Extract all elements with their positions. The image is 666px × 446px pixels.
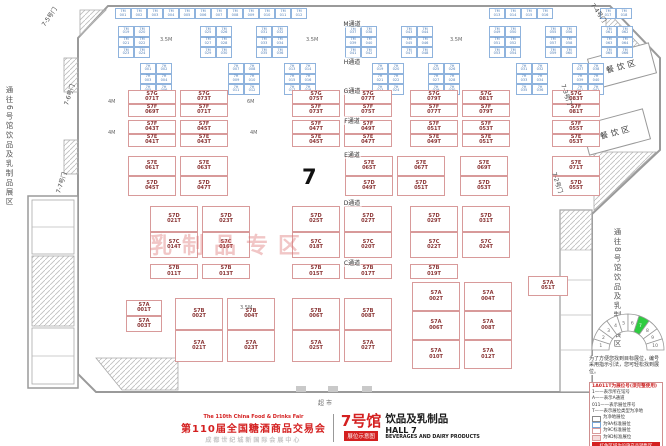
legend-swatches: 为净地展位为9A标准展位为9C标准展位为9D标准展位 — [592, 415, 660, 441]
booth-cell: 7M019 — [118, 26, 134, 37]
booth-cell: 7M032 — [272, 26, 288, 37]
booth-cell: 7M048 — [417, 47, 433, 58]
booth-cell: 7M057 — [545, 37, 561, 48]
hall-topic-en: BEVERAGES AND DAIRY PRODUCTS — [385, 435, 480, 440]
booth-cell: 7M045 — [401, 37, 417, 48]
booth-cell: S7E047T — [344, 134, 392, 148]
hall-name-en: HALL 7 — [385, 426, 480, 435]
booth-cell: 7M060 — [561, 47, 577, 58]
booth-cell: S7B006T — [292, 298, 340, 330]
booth-cell: 7M002 — [131, 8, 147, 19]
dimension-note: 4M — [108, 99, 116, 105]
booth-cell: 7H025 — [428, 63, 444, 74]
booth-cell: S7D045T — [128, 176, 176, 196]
booth-cell: 7M022 — [134, 37, 150, 48]
booth-cell: S7C018T — [292, 232, 340, 258]
booth-cell: S7A027T — [344, 330, 392, 362]
booth-cell: 7M047 — [401, 47, 417, 58]
booth-cell: 7M029 — [200, 47, 216, 58]
booth-cell: S7D053T — [460, 176, 508, 196]
booth-cell: 7M011 — [275, 8, 291, 19]
booth-cell: S7F055T — [552, 120, 600, 134]
locator-hall-number: 5 — [622, 320, 625, 326]
corridor-label: G通道 — [343, 86, 362, 95]
corridor-label: E通道 — [343, 150, 361, 159]
booth-cell: 7H013 — [284, 63, 300, 74]
booth-cell: 7H028 — [444, 74, 460, 85]
booth-cell: 7H031 — [516, 63, 532, 74]
booth-cell: S7D027T — [344, 206, 392, 232]
booth-cell: 7M005 — [179, 8, 195, 19]
booth-cell: S7D051T — [397, 176, 445, 196]
booth-cell: S7F043T — [128, 120, 176, 134]
venue-label: 成都世纪城新国际会展中心 — [205, 435, 301, 444]
booth-cell: 7H008 — [244, 63, 260, 74]
corridor-label: F通道 — [343, 116, 360, 125]
booth-cell: 7M040 — [361, 37, 377, 48]
legend-footer: 红色区域为设施产品销售区 — [592, 442, 660, 446]
booth-cell: 7M031 — [256, 26, 272, 37]
locator-hall-number: 7 — [639, 323, 642, 329]
booth-cell: S7B008T — [344, 298, 392, 330]
booth-cell: 7H009 — [228, 74, 244, 85]
booth-cell: S7C024T — [462, 232, 510, 258]
booth-cell: 7M016 — [537, 8, 553, 19]
booth-cell: 7M012 — [291, 8, 307, 19]
booth-cell: 7M043 — [401, 26, 417, 37]
booth-cell: S7G071T — [128, 90, 176, 104]
booth-cell: S7F051T — [410, 120, 458, 134]
booth-type-swatch — [592, 416, 601, 422]
booth-cell: 7M061 — [601, 26, 617, 37]
booth-cell: 7H027 — [428, 74, 444, 85]
booth-cell: 7M030 — [216, 47, 232, 58]
booth-cell: S7A051T — [528, 276, 568, 296]
booth-cell: S7A008T — [464, 311, 512, 340]
dimension-note: 3.5M — [450, 37, 462, 43]
booth-cell: 7H026 — [444, 63, 460, 74]
booth-cell: 7M034 — [272, 37, 288, 48]
hall-number-label: 7 — [302, 165, 317, 189]
booth-cell: 7M044 — [417, 26, 433, 37]
booth-cell: S7F075T — [344, 104, 392, 118]
booth-cell: 7M058 — [561, 37, 577, 48]
booth-cell: S7D021T — [150, 206, 198, 232]
booth-cell: S7F047T — [292, 120, 340, 134]
locator-hall-number: 1 — [599, 343, 602, 349]
booth-cell: 7M025 — [200, 26, 216, 37]
booth-cell: 7H016 — [300, 74, 316, 85]
booth-cell: S7B004T — [227, 298, 275, 330]
locator-hall-number: 2 — [602, 335, 605, 341]
booth-cell: 7H034 — [532, 74, 548, 85]
supermarket-label: 超市 — [318, 398, 334, 407]
booth-cell: S7A023T — [227, 330, 275, 362]
legend-swatch-row: 为9D标准展位 — [592, 435, 660, 441]
booth-cell: S7E043T — [180, 134, 228, 148]
booth-cell: S7G083T — [552, 90, 600, 104]
booth-type-swatch — [592, 422, 601, 428]
corridor-label: C通道 — [343, 258, 361, 267]
booth-cell: 7H039 — [572, 74, 588, 85]
booth-cell: 7H038 — [588, 63, 604, 74]
locator-hall-number: 9 — [651, 335, 654, 341]
booth-cell: 7M054 — [505, 47, 521, 58]
booth-cell: S7A002T — [412, 282, 460, 311]
booth-cell: S7D031T — [462, 206, 510, 232]
booth-cell: 7M062 — [617, 26, 633, 37]
booth-cell: 7H002 — [156, 63, 172, 74]
hall-title-group: 7号馆 展位示意图 饮品及乳制品 HALL 7 BEVERAGES AND DA… — [341, 414, 480, 441]
booth-cell: 7M042 — [361, 47, 377, 58]
booth-cell: 7H014 — [300, 63, 316, 74]
locator-hall-number: 3 — [607, 328, 610, 334]
booth-cell: S7E063T — [180, 156, 228, 176]
legend-note: 为了方便您找到目标展位，编号采用指示引法，您可轻松找到展位。 — [589, 356, 663, 375]
booth-cell: S7F069T — [128, 104, 176, 118]
booth-cell: S7B015T — [292, 264, 340, 279]
booth-cell: 7M013 — [489, 8, 505, 19]
booth-cell: 7M056 — [561, 26, 577, 37]
booth-cell: 7M051 — [489, 37, 505, 48]
booth-cell: S7E069T — [460, 156, 508, 176]
booth-cell: S7A001T — [126, 300, 162, 316]
booth-cell: 7M027 — [200, 37, 216, 48]
legend-swatch-label: 为9D标准展位 — [603, 435, 631, 441]
booth-cell: 7M020 — [134, 26, 150, 37]
hall-name-cn: 7号馆 — [341, 414, 381, 429]
booth-cell: S7E051T — [462, 134, 510, 148]
booth-cell: 7H022 — [388, 74, 404, 85]
booth-cell: 7H032 — [532, 63, 548, 74]
booth-cell: 7H012 — [244, 84, 260, 95]
booth-cell: 7M053 — [489, 47, 505, 58]
booth-cell: S7E045T — [292, 134, 340, 148]
booth-cell: S7G073T — [180, 90, 228, 104]
booth-cell: S7E067T — [397, 156, 445, 176]
booth-cell: 7M018 — [616, 8, 632, 19]
booth-cell: 7M008 — [227, 8, 243, 19]
booth-cell: 7M026 — [216, 26, 232, 37]
booth-cell: S7A004T — [464, 282, 512, 311]
footer-title-block: The 110th China Food & Drinks Fair 第110届… — [181, 414, 480, 444]
booth-cell: 7H040 — [588, 74, 604, 85]
dimension-note: 3.5M — [240, 305, 252, 311]
locator-hall-number: 6 — [631, 320, 634, 326]
booth-cell: 7H001 — [140, 63, 156, 74]
booth-cell: S7G075T — [292, 90, 340, 104]
booth-cell: S7A003T — [126, 316, 162, 332]
booth-cell: 7M066 — [617, 47, 633, 58]
booth-cell: 7M050 — [505, 26, 521, 37]
booth-cell: S7F079T — [462, 104, 510, 118]
locator-hall-number: 4 — [614, 323, 617, 329]
dimension-note: 3.5M — [160, 37, 172, 43]
fair-title-cn: 第110届全国糖酒商品交易会 — [181, 420, 326, 435]
booth-cell: 7H020 — [388, 63, 404, 74]
booth-cell: 7M021 — [118, 37, 134, 48]
booth-cell: S7F053T — [462, 120, 510, 134]
footer-divider — [333, 414, 334, 442]
booth-cell: 7M064 — [617, 37, 633, 48]
booth-cell: S7F045T — [180, 120, 228, 134]
plan-badge: 展位示意图 — [344, 431, 378, 441]
booth-cell: S7E041T — [128, 134, 176, 148]
booth-cell: 7H035 — [516, 84, 532, 95]
booth-type-swatch — [592, 435, 601, 441]
hall-topic-column: 饮品及乳制品 HALL 7 BEVERAGES AND DAIRY PRODUC… — [385, 414, 480, 441]
booth-type-swatch — [592, 428, 601, 434]
booth-cell: 7M055 — [545, 26, 561, 37]
booth-cell: S7D029T — [410, 206, 458, 232]
fair-title-group: The 110th China Food & Drinks Fair 第110届… — [181, 414, 326, 444]
booth-cell: 7H015 — [284, 74, 300, 85]
booth-cell: S7A006T — [412, 311, 460, 340]
booth-cell: S7E053T — [552, 134, 600, 148]
booth-cell: S7B019T — [410, 264, 458, 279]
booth-cell: S7D047T — [180, 176, 228, 196]
booth-cell: 7M023 — [118, 47, 134, 58]
booth-cell: 7M001 — [115, 8, 131, 19]
booth-cell: 7M063 — [601, 37, 617, 48]
booth-cell: S7C016T — [202, 232, 250, 258]
booth-cell: 7M003 — [147, 8, 163, 19]
booth-cell: S7E049T — [410, 134, 458, 148]
locator-hall-number: 8 — [646, 328, 649, 334]
booth-cell: S7A025T — [292, 330, 340, 362]
booth-cell: 7M052 — [505, 37, 521, 48]
booth-cell: 7M014 — [505, 8, 521, 19]
legend-items: 1——表示所在馆号A——表示A通道011——表示展位序号T——表示展位类型为净地 — [592, 390, 660, 416]
booth-cell: S7G079T — [410, 90, 458, 104]
hall-topic-cn: 饮品及乳制品 — [385, 414, 480, 426]
hall-locator: 12345678910 — [584, 290, 666, 354]
corridor-label: M通道 — [342, 19, 361, 28]
booth-cell: 7M006 — [195, 8, 211, 19]
passage-to-hall6-label: 通往6号馆饮品及乳制品展区 — [4, 86, 15, 207]
booth-cell: 7M039 — [345, 37, 361, 48]
booth-cell: 7M033 — [256, 37, 272, 48]
booth-cell: 7M041 — [345, 47, 361, 58]
legend-box: 1A011T为展位号(须完整使用) 1——表示所在馆号A——表示A通道011——… — [589, 382, 663, 446]
booth-cell: S7D023T — [202, 206, 250, 232]
floor-plan: 乳制品专区 7 餐饮区 餐饮区 通往6号馆饮品及乳制品展区 通往8号馆饮品及乳制… — [0, 0, 666, 446]
booth-cell: 7H019 — [372, 63, 388, 74]
booth-cell: S7B002T — [175, 298, 223, 330]
booth-cell: 7M015 — [521, 8, 537, 19]
booth-cell: S7A021T — [175, 330, 223, 362]
booth-cell: 7M038 — [361, 26, 377, 37]
booth-cell: 7H010 — [244, 74, 260, 85]
dimension-note: 4M — [108, 130, 116, 136]
corridor-label: H通道 — [343, 57, 362, 66]
booth-cell: S7D049T — [345, 176, 393, 196]
booth-cell: 7M059 — [545, 47, 561, 58]
booth-cell: S7F077T — [410, 104, 458, 118]
booth-cell: S7G081T — [462, 90, 510, 104]
booth-cell: 7M010 — [259, 8, 275, 19]
locator-hall-number: 10 — [652, 343, 658, 349]
booth-cell: S7C022T — [410, 232, 458, 258]
booth-cell: 7M009 — [243, 8, 259, 19]
booth-cell: 7M035 — [256, 47, 272, 58]
booth-cell: S7F071T — [180, 104, 228, 118]
booth-cell: 7M036 — [272, 47, 288, 58]
booth-cell: 7M004 — [163, 8, 179, 19]
booth-cell: 7M049 — [489, 26, 505, 37]
booth-cell: S7E061T — [128, 156, 176, 176]
booth-cell: 7M065 — [601, 47, 617, 58]
hall-name-column: 7号馆 展位示意图 — [341, 414, 381, 441]
dimension-note: 6M — [247, 99, 255, 105]
booth-cell: 7H003 — [140, 74, 156, 85]
booth-cell: S7B013T — [202, 264, 250, 279]
dimension-note: 4M — [250, 130, 258, 136]
booth-cell: S7A012T — [464, 340, 512, 369]
booth-cell: S7C014T — [150, 232, 198, 258]
booth-cell: 7H021 — [372, 74, 388, 85]
booth-cell: 7M007 — [211, 8, 227, 19]
booth-cell: 7H036 — [532, 84, 548, 95]
booth-cell: 7H037 — [572, 63, 588, 74]
corridor-label: D通道 — [343, 198, 362, 207]
booth-cell: S7B011T — [150, 264, 198, 279]
booth-cell: S7D025T — [292, 206, 340, 232]
booth-cell: S7A010T — [412, 340, 460, 369]
booth-cell: 7M046 — [417, 37, 433, 48]
booth-cell: S7F081T — [552, 104, 600, 118]
dimension-note: 3.5M — [306, 37, 318, 43]
booth-cell: S7C020T — [344, 232, 392, 258]
booth-cell: 7H011 — [228, 84, 244, 95]
booth-cell: S7F073T — [292, 104, 340, 118]
booth-cell: 7M024 — [134, 47, 150, 58]
booth-cell: 7H007 — [228, 63, 244, 74]
booth-cell: 7H033 — [516, 74, 532, 85]
booth-cell: 7M028 — [216, 37, 232, 48]
booth-cell: 7H004 — [156, 74, 172, 85]
booth-cell: S7E065T — [345, 156, 393, 176]
